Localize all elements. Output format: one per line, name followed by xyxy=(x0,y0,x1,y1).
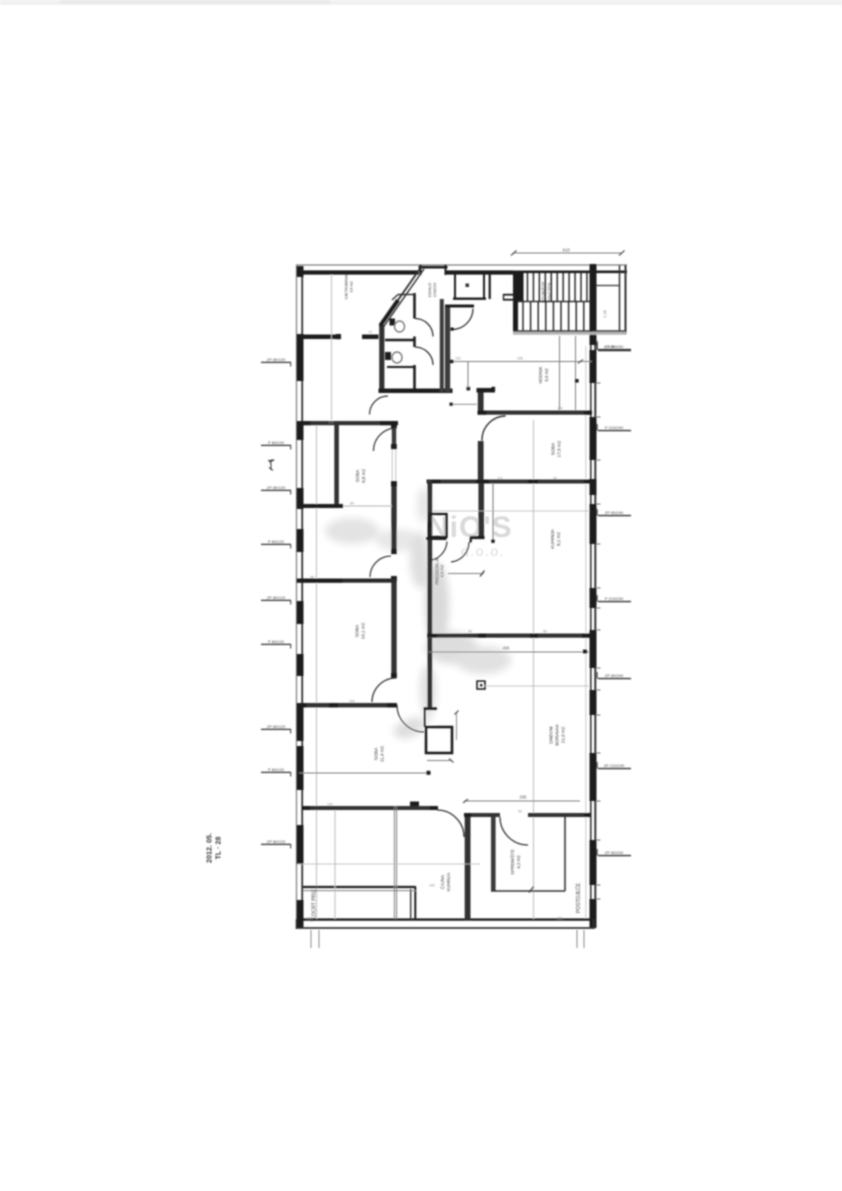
svg-text:75: 75 xyxy=(368,331,372,335)
svg-text:ZP 80/120: ZP 80/120 xyxy=(267,595,286,600)
svg-text:SPREMIŠTE: SPREMIŠTE xyxy=(510,849,515,874)
svg-text:95: 95 xyxy=(310,576,314,580)
svg-text:410: 410 xyxy=(562,248,570,253)
svg-text:SOBA: SOBA xyxy=(551,442,556,456)
svg-text:120/220: 120/220 xyxy=(432,282,437,297)
svg-text:P 80/120: P 80/120 xyxy=(268,440,285,445)
svg-text:HODNIK: HODNIK xyxy=(538,366,543,383)
svg-text:90: 90 xyxy=(553,477,557,481)
svg-text:655: 655 xyxy=(557,917,563,921)
svg-text:ZP 80/240: ZP 80/240 xyxy=(605,510,624,515)
svg-text:P 210/240: P 210/240 xyxy=(605,425,624,430)
svg-text:9,8 m2: 9,8 m2 xyxy=(361,469,366,483)
svg-text:1080: 1080 xyxy=(306,917,314,921)
svg-text:ZP 80/240: ZP 80/240 xyxy=(605,344,624,349)
svg-text:15x17/29: 15x17/29 xyxy=(547,282,552,301)
svg-text:120: 120 xyxy=(327,803,333,807)
svg-text:ZP 80/120: ZP 80/120 xyxy=(267,839,286,844)
svg-text:POSTOJEĆE: POSTOJEĆE xyxy=(575,882,582,913)
svg-text:4,2 m2: 4,2 m2 xyxy=(516,855,521,869)
svg-text:KUHINJA: KUHINJA xyxy=(550,528,555,549)
svg-text:STUBIŠTE: STUBIŠTE xyxy=(541,281,546,303)
svg-text:210: 210 xyxy=(497,477,503,481)
svg-text:9,6 m2: 9,6 m2 xyxy=(544,368,549,382)
svg-text:210: 210 xyxy=(455,357,461,361)
svg-text:DNEVNI: DNEVNI xyxy=(549,726,554,743)
svg-text:90: 90 xyxy=(518,810,522,814)
svg-text:PREDSOBLJE: PREDSOBLJE xyxy=(434,557,439,585)
svg-text:4,6 m2: 4,6 m2 xyxy=(440,564,445,577)
svg-text:17,5 m2: 17,5 m2 xyxy=(556,440,561,457)
svg-text:P 210/240: P 210/240 xyxy=(605,596,624,601)
svg-text:ČAJNA: ČAJNA xyxy=(440,875,445,889)
svg-text:SOBA: SOBA xyxy=(355,624,360,638)
svg-text:11,4 m2: 11,4 m2 xyxy=(379,745,384,762)
svg-text:120: 120 xyxy=(328,421,334,425)
svg-text:SOBA: SOBA xyxy=(374,747,379,761)
svg-text:140: 140 xyxy=(429,884,435,888)
svg-text:ZP 80/240: ZP 80/240 xyxy=(605,673,624,678)
svg-text:10,1 m2: 10,1 m2 xyxy=(360,622,365,639)
svg-text:TL · 28: TL · 28 xyxy=(214,836,223,859)
svg-text:ZP 80/120: ZP 80/120 xyxy=(267,485,286,490)
svg-text:3,6 m2: 3,6 m2 xyxy=(349,281,353,292)
svg-text:ZP 80/120: ZP 80/120 xyxy=(267,724,286,729)
svg-text:55: 55 xyxy=(468,630,472,634)
svg-text:295: 295 xyxy=(520,795,528,800)
svg-text:165: 165 xyxy=(517,357,523,361)
svg-text:SOBA: SOBA xyxy=(355,469,360,483)
svg-text:BORAVAK: BORAVAK xyxy=(555,723,560,745)
svg-text:80: 80 xyxy=(543,630,547,634)
svg-text:VJETROBRAN: VJETROBRAN xyxy=(345,274,349,299)
svg-text:305: 305 xyxy=(349,700,355,704)
svg-text:1,10: 1,10 xyxy=(603,310,607,317)
svg-text:21,0 m2: 21,0 m2 xyxy=(560,726,565,743)
svg-text:8,2 m2: 8,2 m2 xyxy=(556,532,561,546)
svg-text:ZP 210/240: ZP 210/240 xyxy=(604,763,625,768)
svg-text:2012. 05.: 2012. 05. xyxy=(204,833,213,863)
svg-text:80: 80 xyxy=(350,502,354,506)
svg-text:KUHINJA: KUHINJA xyxy=(446,873,451,892)
svg-text:P 80/120: P 80/120 xyxy=(268,767,285,772)
svg-text:455: 455 xyxy=(503,646,511,651)
svg-text:ZP 80/120: ZP 80/120 xyxy=(267,357,286,362)
svg-text:ZP 80/240: ZP 80/240 xyxy=(605,850,624,855)
svg-text:P 80/120: P 80/120 xyxy=(268,539,285,544)
svg-text:120: 120 xyxy=(557,407,563,411)
svg-text:P 80/120: P 80/120 xyxy=(268,639,285,644)
